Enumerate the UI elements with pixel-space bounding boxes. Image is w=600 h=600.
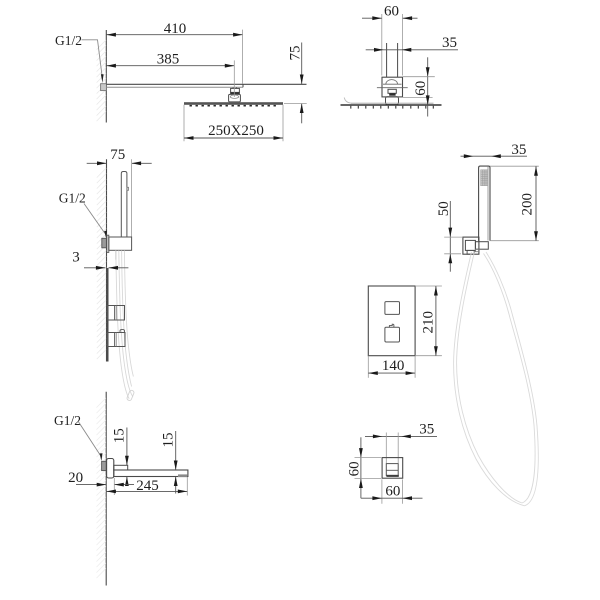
svg-text:75: 75 (110, 147, 125, 163)
svg-text:20: 20 (68, 470, 83, 486)
svg-text:210: 210 (420, 311, 436, 334)
svg-text:G1/2: G1/2 (55, 33, 82, 48)
svg-text:3: 3 (72, 250, 80, 266)
svg-text:75: 75 (287, 46, 303, 61)
svg-text:245: 245 (136, 478, 159, 494)
svg-text:140: 140 (382, 358, 405, 374)
svg-text:60: 60 (413, 81, 429, 96)
svg-text:35: 35 (511, 142, 526, 158)
svg-text:50: 50 (436, 201, 452, 216)
svg-text:G1/2: G1/2 (54, 413, 81, 428)
svg-text:35: 35 (419, 422, 434, 438)
svg-text:60: 60 (384, 4, 399, 20)
svg-text:200: 200 (519, 193, 535, 216)
svg-text:385: 385 (157, 52, 180, 68)
svg-text:60: 60 (385, 483, 400, 499)
svg-text:35: 35 (442, 35, 457, 51)
svg-text:15: 15 (160, 433, 176, 448)
svg-text:15: 15 (112, 428, 128, 443)
svg-text:60: 60 (347, 461, 363, 476)
svg-text:250X250: 250X250 (208, 123, 264, 139)
svg-text:410: 410 (164, 21, 187, 37)
svg-text:G1/2: G1/2 (59, 190, 86, 205)
